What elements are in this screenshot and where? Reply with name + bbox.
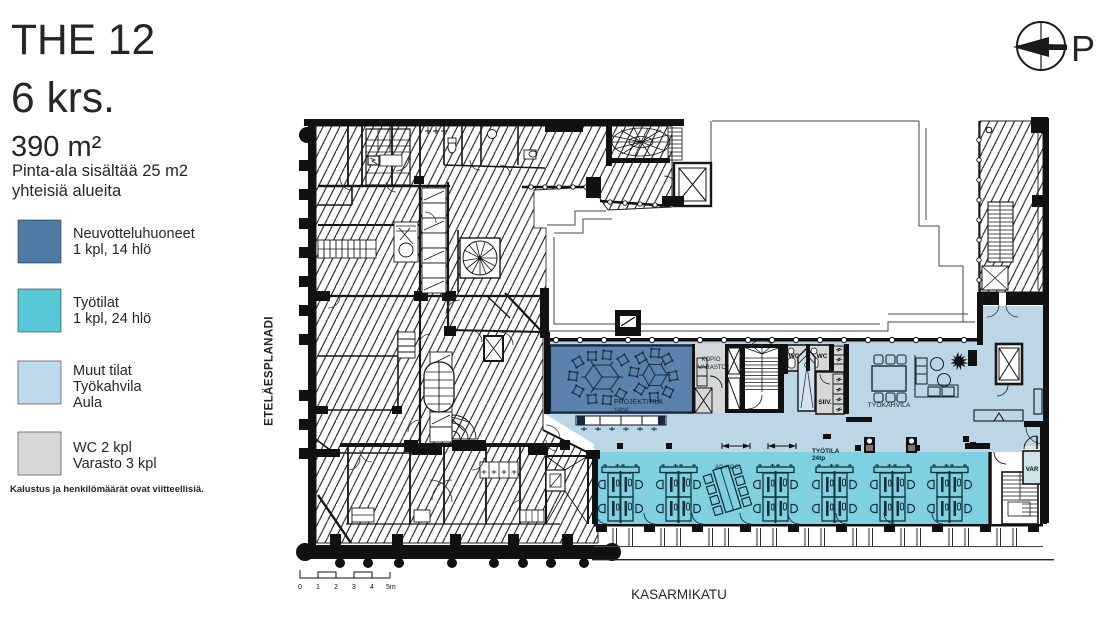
svg-text:0: 0 — [298, 584, 302, 591]
svg-text:Aula: Aula — [73, 395, 103, 411]
svg-text:2: 2 — [334, 584, 338, 591]
svg-text:Neuvotteluhuoneet: Neuvotteluhuoneet — [73, 226, 195, 242]
svg-text:TYÖKAHVILA: TYÖKAHVILA — [868, 401, 911, 409]
svg-text:1 kpl, 14 hlö: 1 kpl, 14 hlö — [73, 242, 151, 258]
svg-text:1 kpl, 24 hlö: 1 kpl, 24 hlö — [73, 311, 151, 327]
svg-text:Muut tilat: Muut tilat — [73, 363, 132, 379]
svg-text:5m: 5m — [386, 584, 396, 591]
svg-text:VARASTO: VARASTO — [698, 365, 726, 371]
svg-text:WC: WC — [817, 353, 828, 360]
svg-text:P: P — [1071, 28, 1095, 69]
svg-text:Työkahvila: Työkahvila — [73, 379, 142, 395]
svg-text:Varasto 3 kpl: Varasto 3 kpl — [73, 456, 157, 472]
svg-text:24tp: 24tp — [812, 455, 825, 462]
svg-text:VAR: VAR — [1026, 466, 1039, 473]
svg-text:14hö: 14hö — [614, 407, 629, 414]
svg-text:KASARMIKATU: KASARMIKATU — [631, 587, 727, 602]
svg-text:Työtilat: Työtilat — [73, 295, 119, 311]
svg-text:WC 2 kpl: WC 2 kpl — [73, 440, 132, 456]
svg-text:390 m²: 390 m² — [11, 131, 102, 163]
svg-text:PROJEKTITILA: PROJEKTITILA — [614, 399, 663, 406]
svg-text:THE 12: THE 12 — [11, 17, 155, 64]
svg-text:Kalustus ja henkilömäärät ovat: Kalustus ja henkilömäärät ovat viitteell… — [10, 484, 204, 495]
svg-text:TYÖTILA: TYÖTILA — [812, 446, 840, 455]
svg-text:6 krs.: 6 krs. — [11, 75, 115, 122]
svg-text:1: 1 — [316, 584, 320, 591]
svg-text:3: 3 — [352, 584, 356, 591]
svg-text:yhteisiä alueita: yhteisiä alueita — [12, 182, 122, 200]
svg-text:SIIV.: SIIV. — [818, 399, 832, 406]
svg-text:4: 4 — [370, 584, 374, 591]
svg-text:Pinta-ala sisältää 25 m2: Pinta-ala sisältää 25 m2 — [12, 162, 188, 180]
svg-text:AD HOC: AD HOC — [715, 464, 740, 471]
svg-text:ETELÄESPLANADI: ETELÄESPLANADI — [263, 316, 276, 426]
